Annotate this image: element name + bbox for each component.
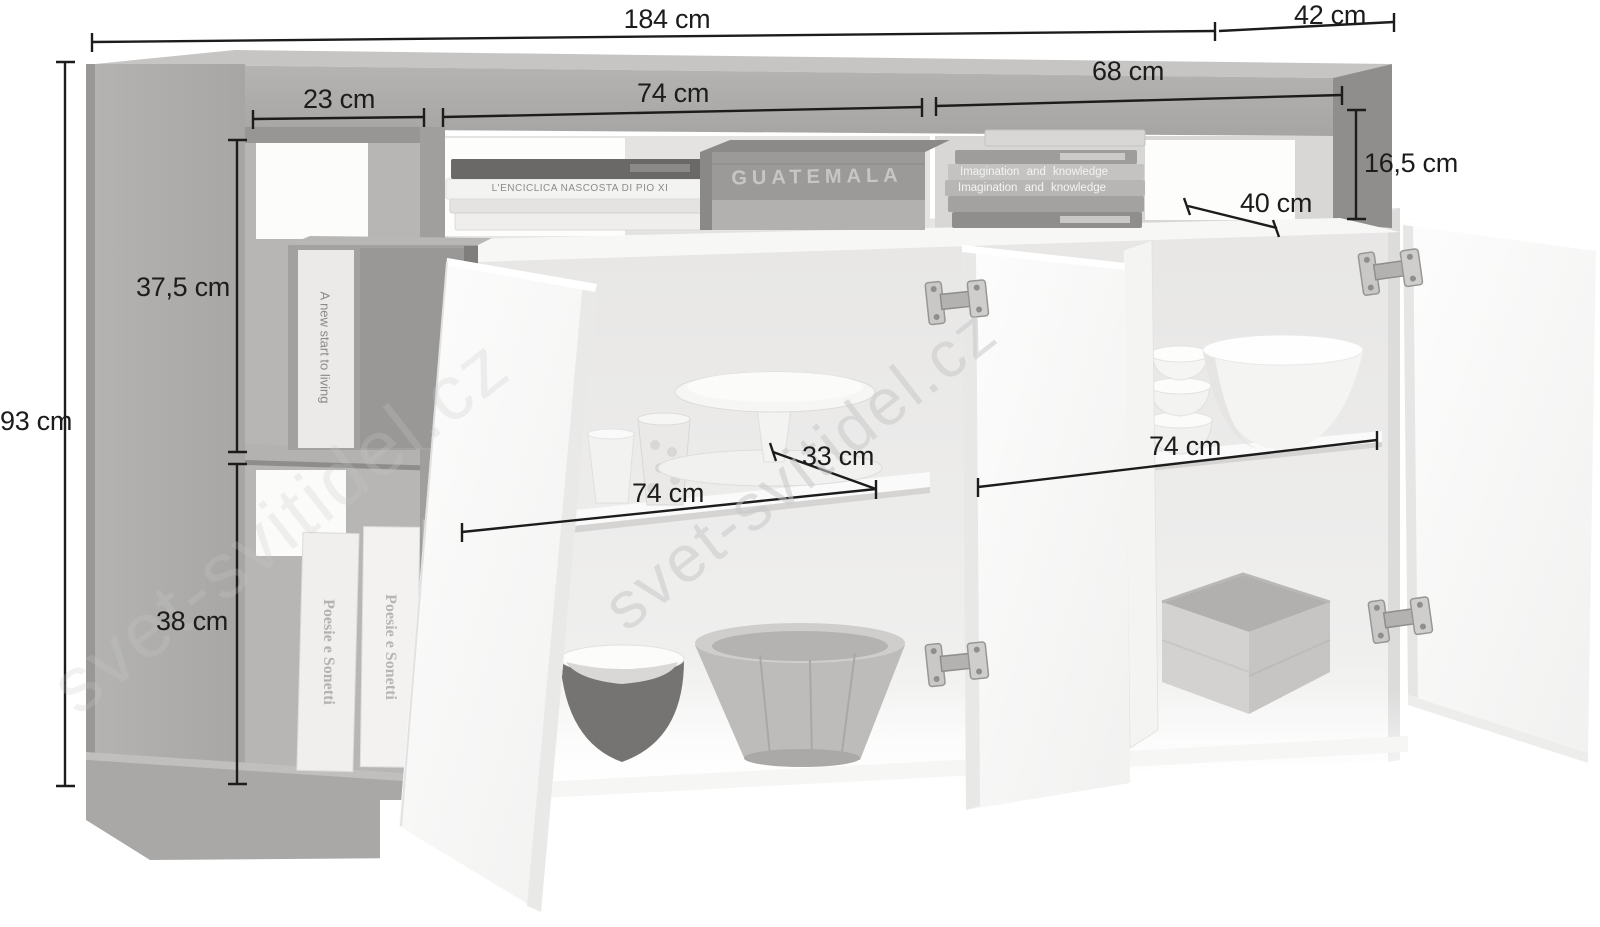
dim-label-niche-height: 16,5 cm xyxy=(1364,148,1484,179)
guatemala-crate xyxy=(700,140,950,230)
dim-label-top-right-width: 68 cm xyxy=(1078,56,1178,87)
dim-label-lower-shelf-height: 38 cm xyxy=(140,606,228,637)
middle-door xyxy=(962,245,1130,810)
dim-label-left-shelf-width: 23 cm xyxy=(289,84,389,115)
dim-label-upper-shelf-height: 37,5 cm xyxy=(130,272,230,303)
book-stack-left xyxy=(446,159,707,230)
dim-label-top-middle-width: 74 cm xyxy=(623,78,723,109)
right-door xyxy=(1403,218,1596,763)
floor-glow xyxy=(380,800,1600,927)
dim-label-height: 93 cm xyxy=(0,406,72,437)
dim-label-shelf-depth: 33 cm xyxy=(788,441,888,472)
dim-label-depth: 42 cm xyxy=(1280,0,1380,31)
product-dimension-diagram: svet-svitidel.cz svet-svitidel.cz A new … xyxy=(0,0,1600,927)
left-tower xyxy=(86,64,245,792)
dim-label-left-compartment-width: 74 cm xyxy=(618,478,718,509)
dim-label-total-width: 184 cm xyxy=(617,4,717,35)
dim-label-niche-depth: 40 cm xyxy=(1226,188,1326,219)
dim-label-right-compartment-width: 74 cm xyxy=(1135,431,1235,462)
